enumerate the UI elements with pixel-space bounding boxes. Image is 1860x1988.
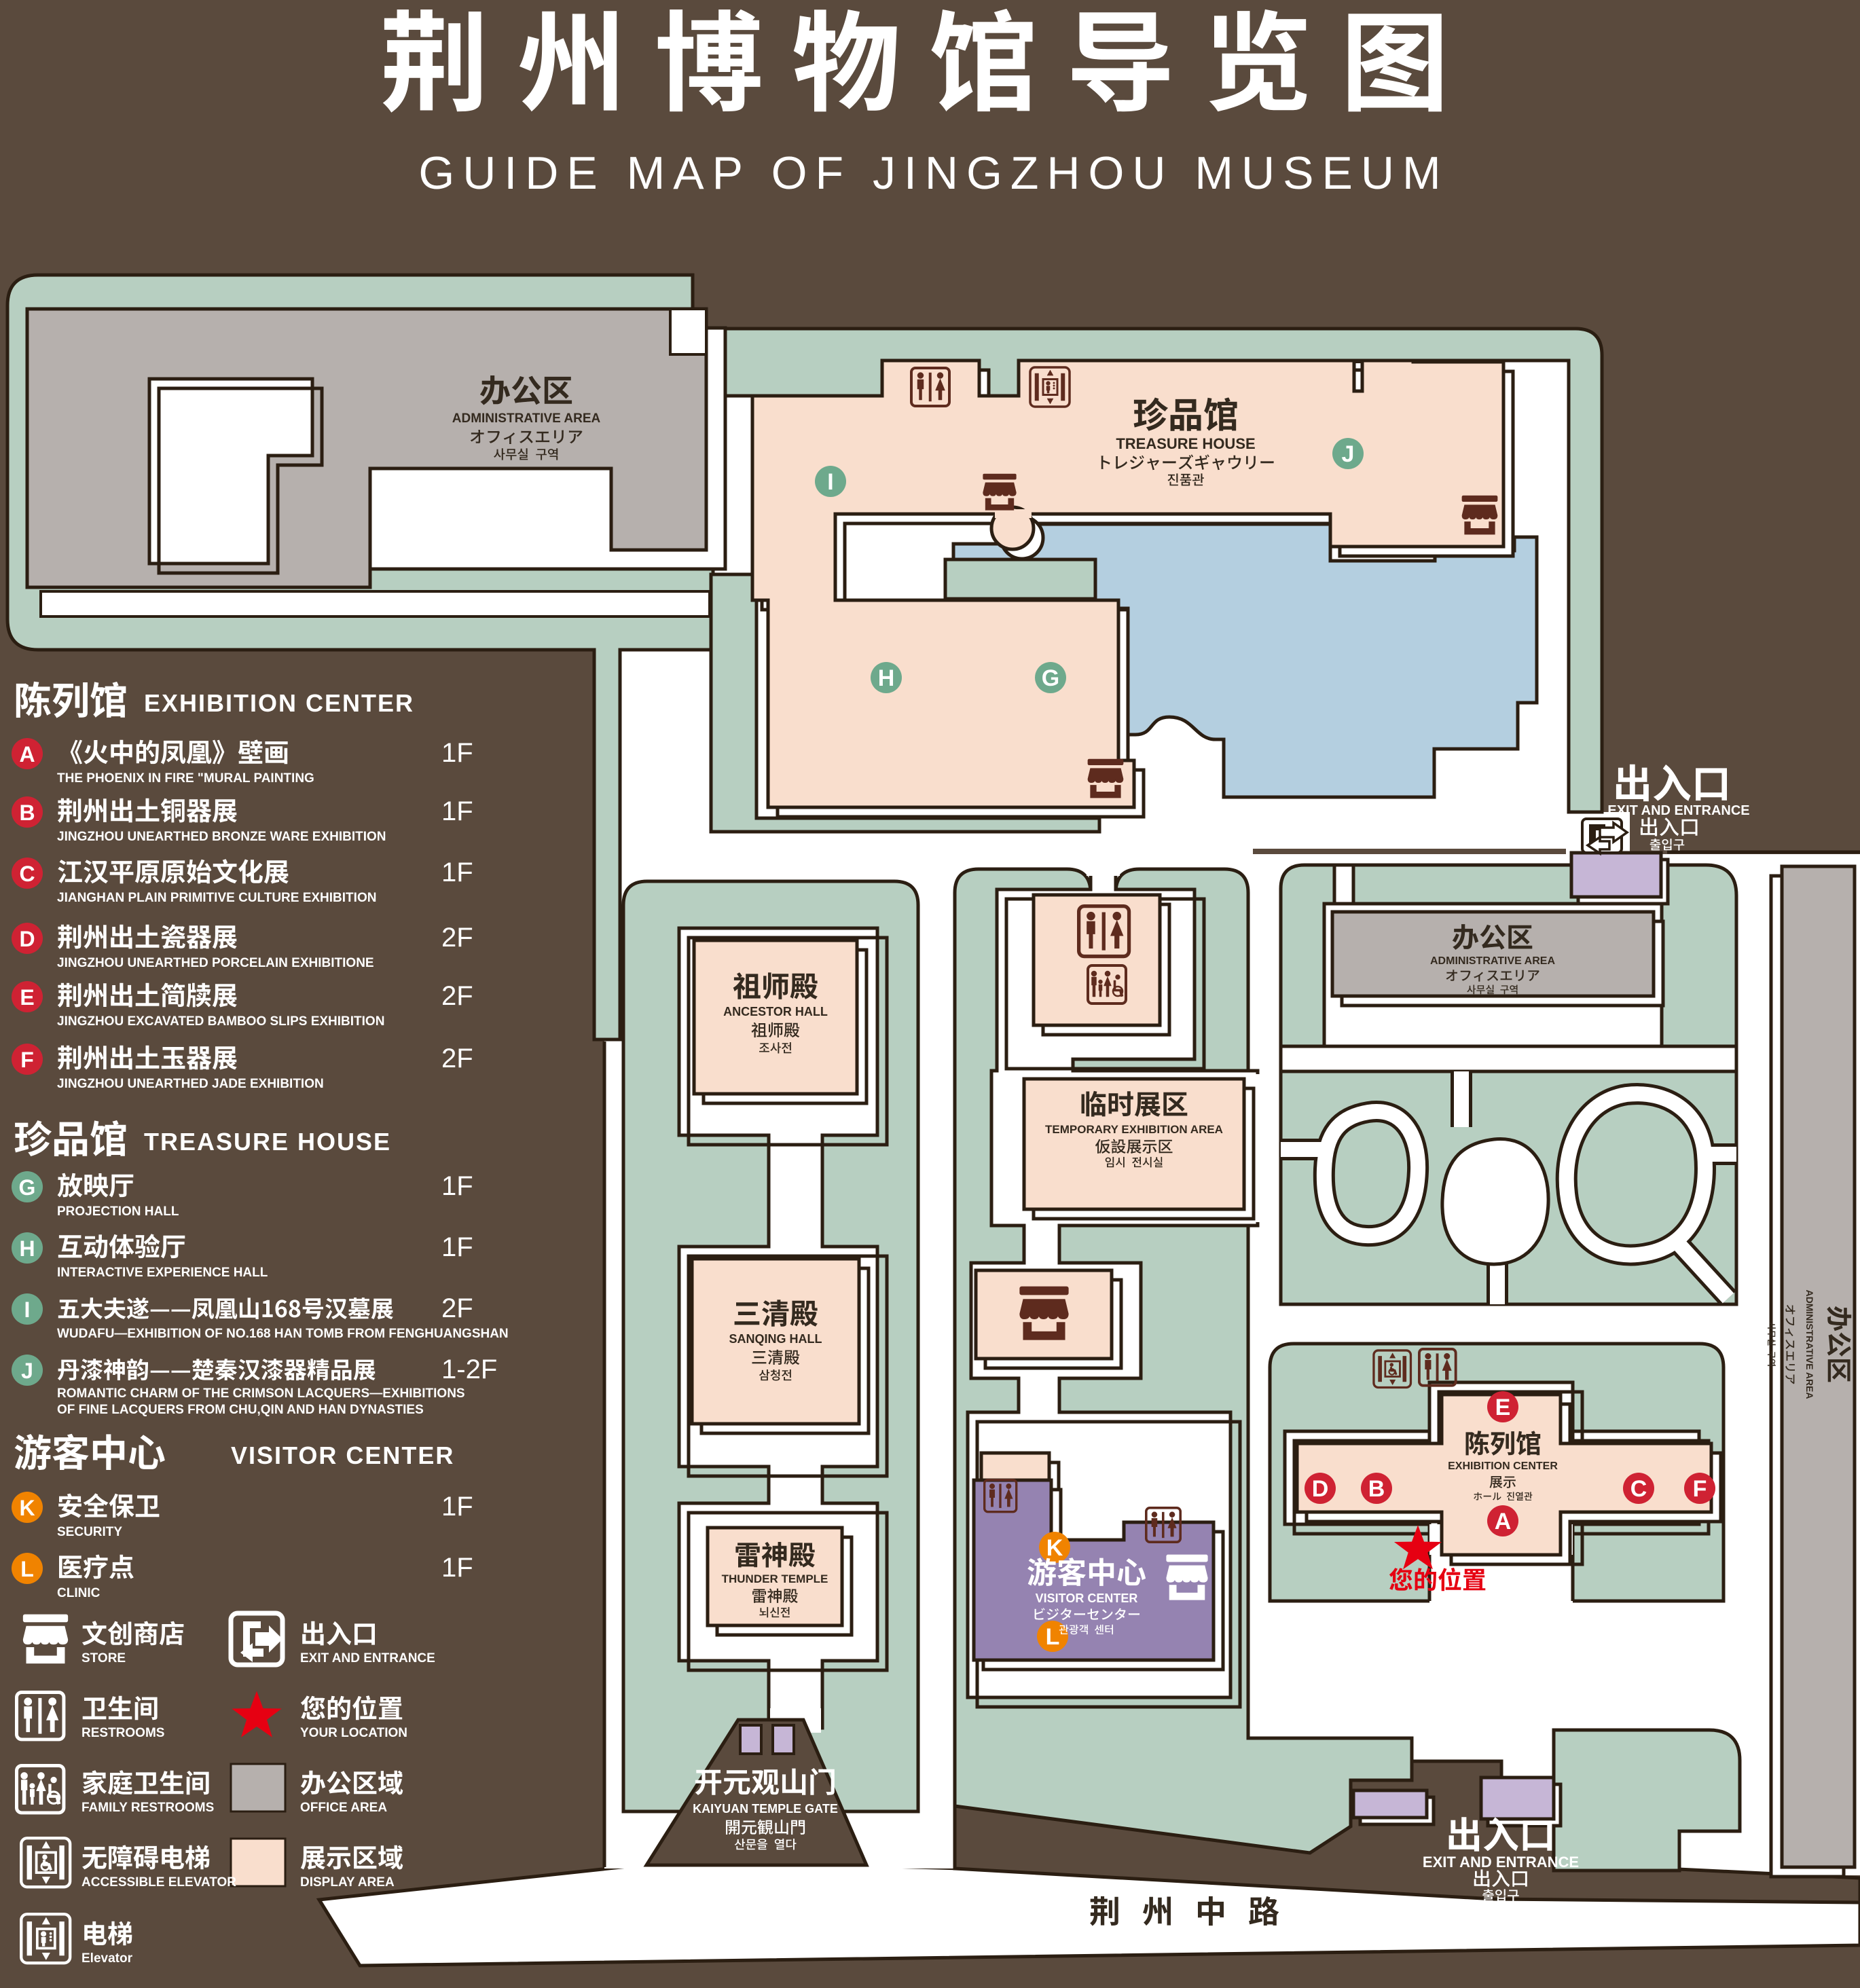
svg-text:H: H xyxy=(878,665,895,691)
svg-text:D: D xyxy=(19,927,35,951)
svg-text:B: B xyxy=(1368,1476,1385,1502)
svg-text:JIANGHAN PLAIN PRIMITIVE CULTU: JIANGHAN PLAIN PRIMITIVE CULTURE EXHIBIT… xyxy=(57,891,376,905)
svg-text:PROJECTION HALL: PROJECTION HALL xyxy=(57,1204,179,1219)
svg-text:C: C xyxy=(19,862,35,886)
svg-text:G: G xyxy=(1042,665,1059,691)
svg-text:ADMINISTRATIVE AREA: ADMINISTRATIVE AREA xyxy=(1804,1290,1815,1399)
svg-text:STORE: STORE xyxy=(81,1651,126,1665)
svg-text:F: F xyxy=(1693,1476,1707,1502)
svg-text:D: D xyxy=(1312,1476,1329,1502)
svg-text:ADMINISTRATIVE AREA: ADMINISTRATIVE AREA xyxy=(1430,955,1555,967)
svg-text:RESTROOMS: RESTROOMS xyxy=(81,1726,164,1740)
svg-text:1F: 1F xyxy=(441,1492,473,1522)
svg-text:I: I xyxy=(827,469,833,495)
svg-text:1-2F: 1-2F xyxy=(441,1355,497,1384)
svg-text:KAIYUAN TEMPLE GATE: KAIYUAN TEMPLE GATE xyxy=(693,1802,838,1816)
svg-text:EXIT AND ENTRANCE: EXIT AND ENTRANCE xyxy=(300,1651,435,1665)
svg-text:VISITOR CENTER: VISITOR CENTER xyxy=(1036,1591,1138,1605)
svg-text:OFFICE AREA: OFFICE AREA xyxy=(300,1801,387,1815)
svg-text:EXHIBITION CENTER: EXHIBITION CENTER xyxy=(1448,1460,1558,1472)
svg-text:I: I xyxy=(24,1297,31,1322)
svg-text:TREASURE HOUSE: TREASURE HOUSE xyxy=(144,1128,391,1156)
svg-text:1F: 1F xyxy=(441,1553,473,1583)
svg-text:JINGZHOU UNEARTHED PORCELAIN E: JINGZHOU UNEARTHED PORCELAIN EXHIBITIONE xyxy=(57,956,374,970)
svg-text:INTERACTIVE EXPERIENCE HALL: INTERACTIVE EXPERIENCE HALL xyxy=(57,1266,268,1280)
svg-text:WUDAFU—EXHIBITION OF NO.168 HA: WUDAFU—EXHIBITION OF NO.168 HAN TOMB FRO… xyxy=(57,1327,509,1341)
svg-text:ROMANTIC CHARM OF THE CRIMSON: ROMANTIC CHARM OF THE CRIMSON LACQUERS—E… xyxy=(57,1386,465,1401)
svg-text:J: J xyxy=(21,1359,33,1383)
svg-text:J: J xyxy=(1342,441,1355,467)
svg-text:EXHIBITION CENTER: EXHIBITION CENTER xyxy=(144,689,414,717)
svg-text:K: K xyxy=(19,1496,35,1520)
svg-text:SECURITY: SECURITY xyxy=(57,1525,122,1539)
svg-text:Elevator: Elevator xyxy=(81,1951,133,1966)
svg-text:1F: 1F xyxy=(441,738,473,768)
svg-text:G: G xyxy=(19,1175,36,1200)
svg-text:1F: 1F xyxy=(441,796,473,826)
svg-text:VISITOR CENTER: VISITOR CENTER xyxy=(231,1441,454,1469)
svg-text:THUNDER TEMPLE: THUNDER TEMPLE xyxy=(722,1572,828,1585)
svg-text:THE PHOENIX IN FIRE "MURAL PAI: THE PHOENIX IN FIRE "MURAL PAINTING xyxy=(57,771,314,786)
svg-text:L: L xyxy=(20,1557,34,1581)
svg-text:A: A xyxy=(19,742,35,767)
svg-text:F: F xyxy=(20,1048,34,1072)
svg-text:ANCESTOR HALL: ANCESTOR HALL xyxy=(723,1005,828,1018)
svg-text:SANQING HALL: SANQING HALL xyxy=(729,1332,822,1346)
svg-text:GUIDE MAP OF JINGZHOU MUSEUM: GUIDE MAP OF JINGZHOU MUSEUM xyxy=(418,147,1448,199)
svg-text:A: A xyxy=(1495,1509,1512,1534)
svg-text:1F: 1F xyxy=(441,1232,473,1262)
svg-text:E: E xyxy=(1495,1395,1511,1420)
svg-text:TEMPORARY EXHIBITION AREA: TEMPORARY EXHIBITION AREA xyxy=(1045,1123,1223,1136)
svg-text:DISPLAY AREA: DISPLAY AREA xyxy=(300,1875,395,1890)
svg-text:YOUR LOCATION: YOUR LOCATION xyxy=(300,1726,407,1740)
svg-text:JINGZHOU UNEARTHED JADE EXHIBI: JINGZHOU UNEARTHED JADE EXHIBITION xyxy=(57,1077,324,1091)
svg-text:E: E xyxy=(20,985,34,1010)
svg-text:EXIT AND ENTRANCE: EXIT AND ENTRANCE xyxy=(1607,803,1749,818)
svg-text:K: K xyxy=(1046,1535,1063,1561)
svg-text:JINGZHOU EXCAVATED BAMBOO SLIP: JINGZHOU EXCAVATED BAMBOO SLIPS EXHIBITI… xyxy=(57,1014,384,1029)
svg-text:2F: 2F xyxy=(441,923,473,953)
svg-text:2F: 2F xyxy=(441,1293,473,1323)
svg-text:2F: 2F xyxy=(441,981,473,1011)
svg-text:TREASURE HOUSE: TREASURE HOUSE xyxy=(1116,435,1255,452)
svg-text:OF FINE LACQUERS FROM CHU,QIN: OF FINE LACQUERS FROM CHU,QIN AND HAN DY… xyxy=(57,1403,424,1417)
svg-text:CLINIC: CLINIC xyxy=(57,1586,101,1600)
svg-text:ACCESSIBLE ELEVATOR: ACCESSIBLE ELEVATOR xyxy=(81,1875,236,1890)
svg-text:1F: 1F xyxy=(441,1171,473,1201)
svg-text:FAMILY RESTROOMS: FAMILY RESTROOMS xyxy=(81,1801,214,1815)
svg-text:C: C xyxy=(1630,1476,1647,1502)
svg-text:2F: 2F xyxy=(441,1044,473,1073)
svg-text:ADMINISTRATIVE AREA: ADMINISTRATIVE AREA xyxy=(452,411,601,426)
svg-text:1F: 1F xyxy=(441,858,473,887)
svg-text:JINGZHOU UNEARTHED BRONZE WARE: JINGZHOU UNEARTHED BRONZE WARE EXHIBITIO… xyxy=(57,830,386,844)
svg-text:H: H xyxy=(19,1236,35,1261)
svg-text:B: B xyxy=(19,800,35,825)
svg-text:EXIT AND ENTRANCE: EXIT AND ENTRANCE xyxy=(1423,1854,1579,1871)
svg-text:L: L xyxy=(1046,1624,1060,1650)
